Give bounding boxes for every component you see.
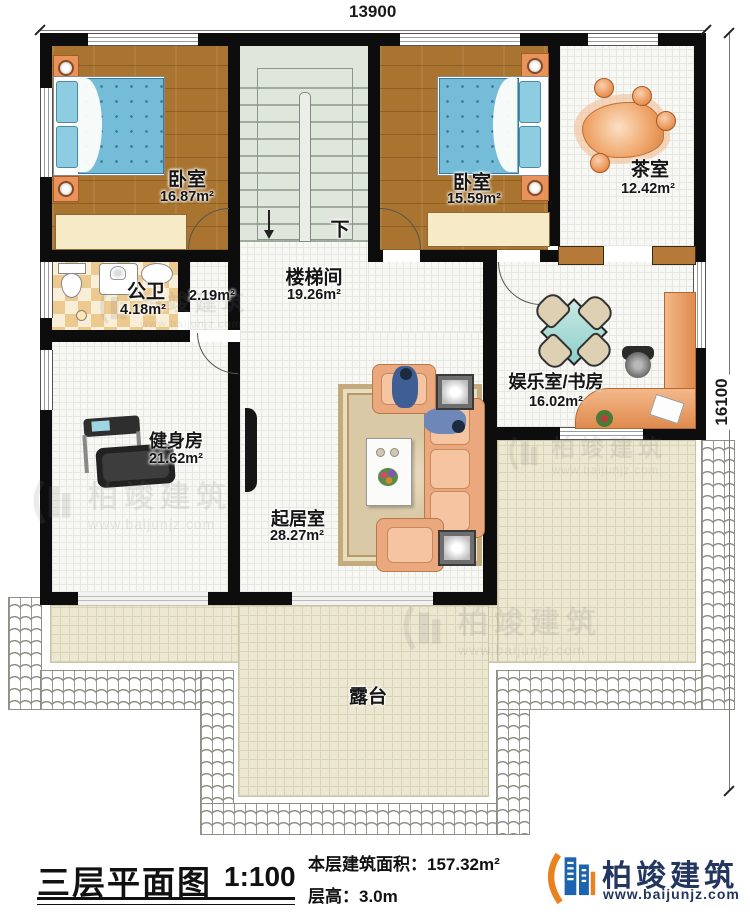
person-head: [400, 368, 412, 380]
wall-study-top: [540, 250, 560, 262]
lamp-icon: [58, 181, 74, 197]
flower-vase: [378, 468, 398, 486]
wall-below-bathroom: [40, 330, 190, 342]
watermark-website: www.baijunjz.com: [458, 642, 602, 658]
stair-down-label: 下: [330, 215, 349, 242]
title-underline: [37, 897, 295, 900]
tea-stool: [590, 153, 610, 173]
wall-left-2: [40, 177, 52, 255]
tea-room-cabinet-left: [558, 246, 604, 265]
tea-table: [582, 102, 664, 158]
armchair-bottom: [376, 518, 444, 572]
room-area-bedroom2: 15.59m²: [447, 191, 501, 207]
room-label-study: 娱乐室/书房: [508, 368, 603, 394]
window-left-gym: [40, 350, 53, 410]
title-underline-thin: [37, 904, 295, 905]
wall-stair-bedroom2: [368, 33, 380, 250]
wall-living-study: [483, 262, 497, 592]
tea-stool: [656, 111, 676, 131]
sofa-cushion: [430, 449, 470, 489]
stair-stringer: [299, 92, 311, 242]
pillow: [519, 126, 541, 168]
floor-area-text: 本层建筑面积：157.32m²: [308, 850, 500, 875]
wall-gym-living: [228, 342, 240, 592]
room-area-hallway: 2.19m²: [189, 288, 235, 304]
room-area-stairwell: 19.26m²: [287, 287, 341, 303]
terrace-tile-border-right-strip: [496, 670, 735, 710]
closet-hangers: [55, 214, 187, 250]
room-label-bathroom: 公卫: [127, 277, 165, 304]
watermark-brand: 柏竣建筑: [458, 598, 602, 642]
cup: [376, 448, 385, 457]
watermark: 柏竣建筑 www.baijunjz.com: [505, 430, 667, 477]
closet-hangers: [427, 212, 550, 247]
wall-right-1: [694, 33, 706, 262]
wall-below-bedroom2-b: [420, 250, 497, 262]
slider-door-gym: [78, 592, 208, 605]
pillow: [56, 126, 78, 168]
room-area-bathroom: 4.18m²: [120, 302, 166, 318]
watermark-brand: 柏竣建筑: [88, 472, 232, 516]
shower-head-icon: [110, 266, 126, 280]
room-area-study: 16.02m²: [529, 394, 583, 410]
tea-stool: [632, 86, 652, 106]
watermark-logo-icon: [398, 602, 450, 654]
stair-down-arrow: [268, 210, 270, 230]
wall-below-bedroom2-a: [368, 250, 383, 262]
corridor-floor: [368, 262, 483, 332]
cup: [390, 448, 399, 457]
room-label-gym: 健身房: [149, 427, 203, 453]
dimension-right-value: 16100: [712, 374, 732, 429]
pillow: [56, 81, 78, 123]
room-area-gym: 21.62m²: [149, 451, 203, 467]
side-table-lamp: [436, 374, 474, 410]
terrace-tile-border-left: [8, 597, 42, 710]
lamp-icon: [527, 58, 543, 74]
floor-height-text: 层高：3.0m: [308, 882, 398, 907]
brand-website: www.baijunjz.com: [603, 886, 740, 902]
room-label-terrace: 露台: [349, 682, 387, 709]
lamp-icon: [442, 380, 468, 404]
window-left-bedroom1: [40, 88, 53, 177]
room-label-tearoom: 茶室: [631, 155, 669, 182]
watermark: 柏竣建筑 www.baijunjz.com: [398, 598, 602, 658]
room-area-bedroom1: 16.87m²: [160, 189, 214, 205]
window-top-tearoom: [588, 33, 658, 46]
wall-bottom-pier1: [40, 592, 78, 605]
lamp-icon: [444, 536, 470, 560]
stair-down-arrow-head: [264, 230, 274, 239]
room-label-bedroom1: 卧室: [168, 165, 206, 192]
tv: [245, 408, 257, 492]
floor-plan: 柏竣建筑 www.baijunjz.com 柏竣建筑 www.baijunjz.…: [0, 0, 750, 915]
plant: [596, 410, 613, 427]
watermark: 柏竣建筑 www.baijunjz.com: [28, 472, 232, 532]
dimension-line-top: [40, 30, 706, 31]
nightstand: [521, 175, 549, 201]
pillow: [519, 81, 541, 123]
window-top-bedroom1: [88, 33, 198, 46]
plan-scale: 1:100: [224, 861, 296, 893]
side-table-lamp: [438, 530, 476, 566]
wall-below-bedroom1: [40, 250, 228, 262]
lamp-icon: [58, 60, 74, 76]
terrace-tile-border-bottom: [200, 803, 530, 835]
treadmill-screen: [91, 420, 110, 431]
person-head: [452, 420, 465, 433]
watermark-website: www.baijunjz.com: [88, 516, 232, 532]
dimension-top-value: 13900: [345, 2, 400, 22]
watermark-website: www.baijunjz.com: [552, 463, 667, 477]
watermark-website: www.baijunjz.com: [140, 317, 249, 330]
wall-bottom-pier2: [208, 592, 292, 605]
watermark-brand: 柏竣建筑: [552, 430, 667, 463]
watermark-logo-icon: [505, 434, 545, 474]
room-area-living: 28.27m²: [270, 528, 324, 544]
office-chair-seat: [625, 352, 651, 378]
window-top-bedroom2: [400, 33, 520, 46]
lamp-icon: [527, 180, 543, 196]
terrace-tile-border-left-strip: [40, 670, 206, 710]
room-label-stairwell: 楼梯间: [285, 263, 342, 290]
watermark-logo-icon: [28, 476, 80, 528]
floor-drain-icon: [76, 310, 87, 321]
brand-logo-icon: [543, 850, 597, 906]
tea-room-cabinet-right: [652, 246, 696, 265]
wall-left-1: [40, 33, 52, 88]
sofa-cushion: [387, 527, 433, 563]
tea-stool: [594, 78, 614, 98]
nightstand: [53, 176, 79, 202]
room-area-tearoom: 12.42m²: [621, 181, 675, 197]
window-left-bathroom: [40, 255, 53, 318]
